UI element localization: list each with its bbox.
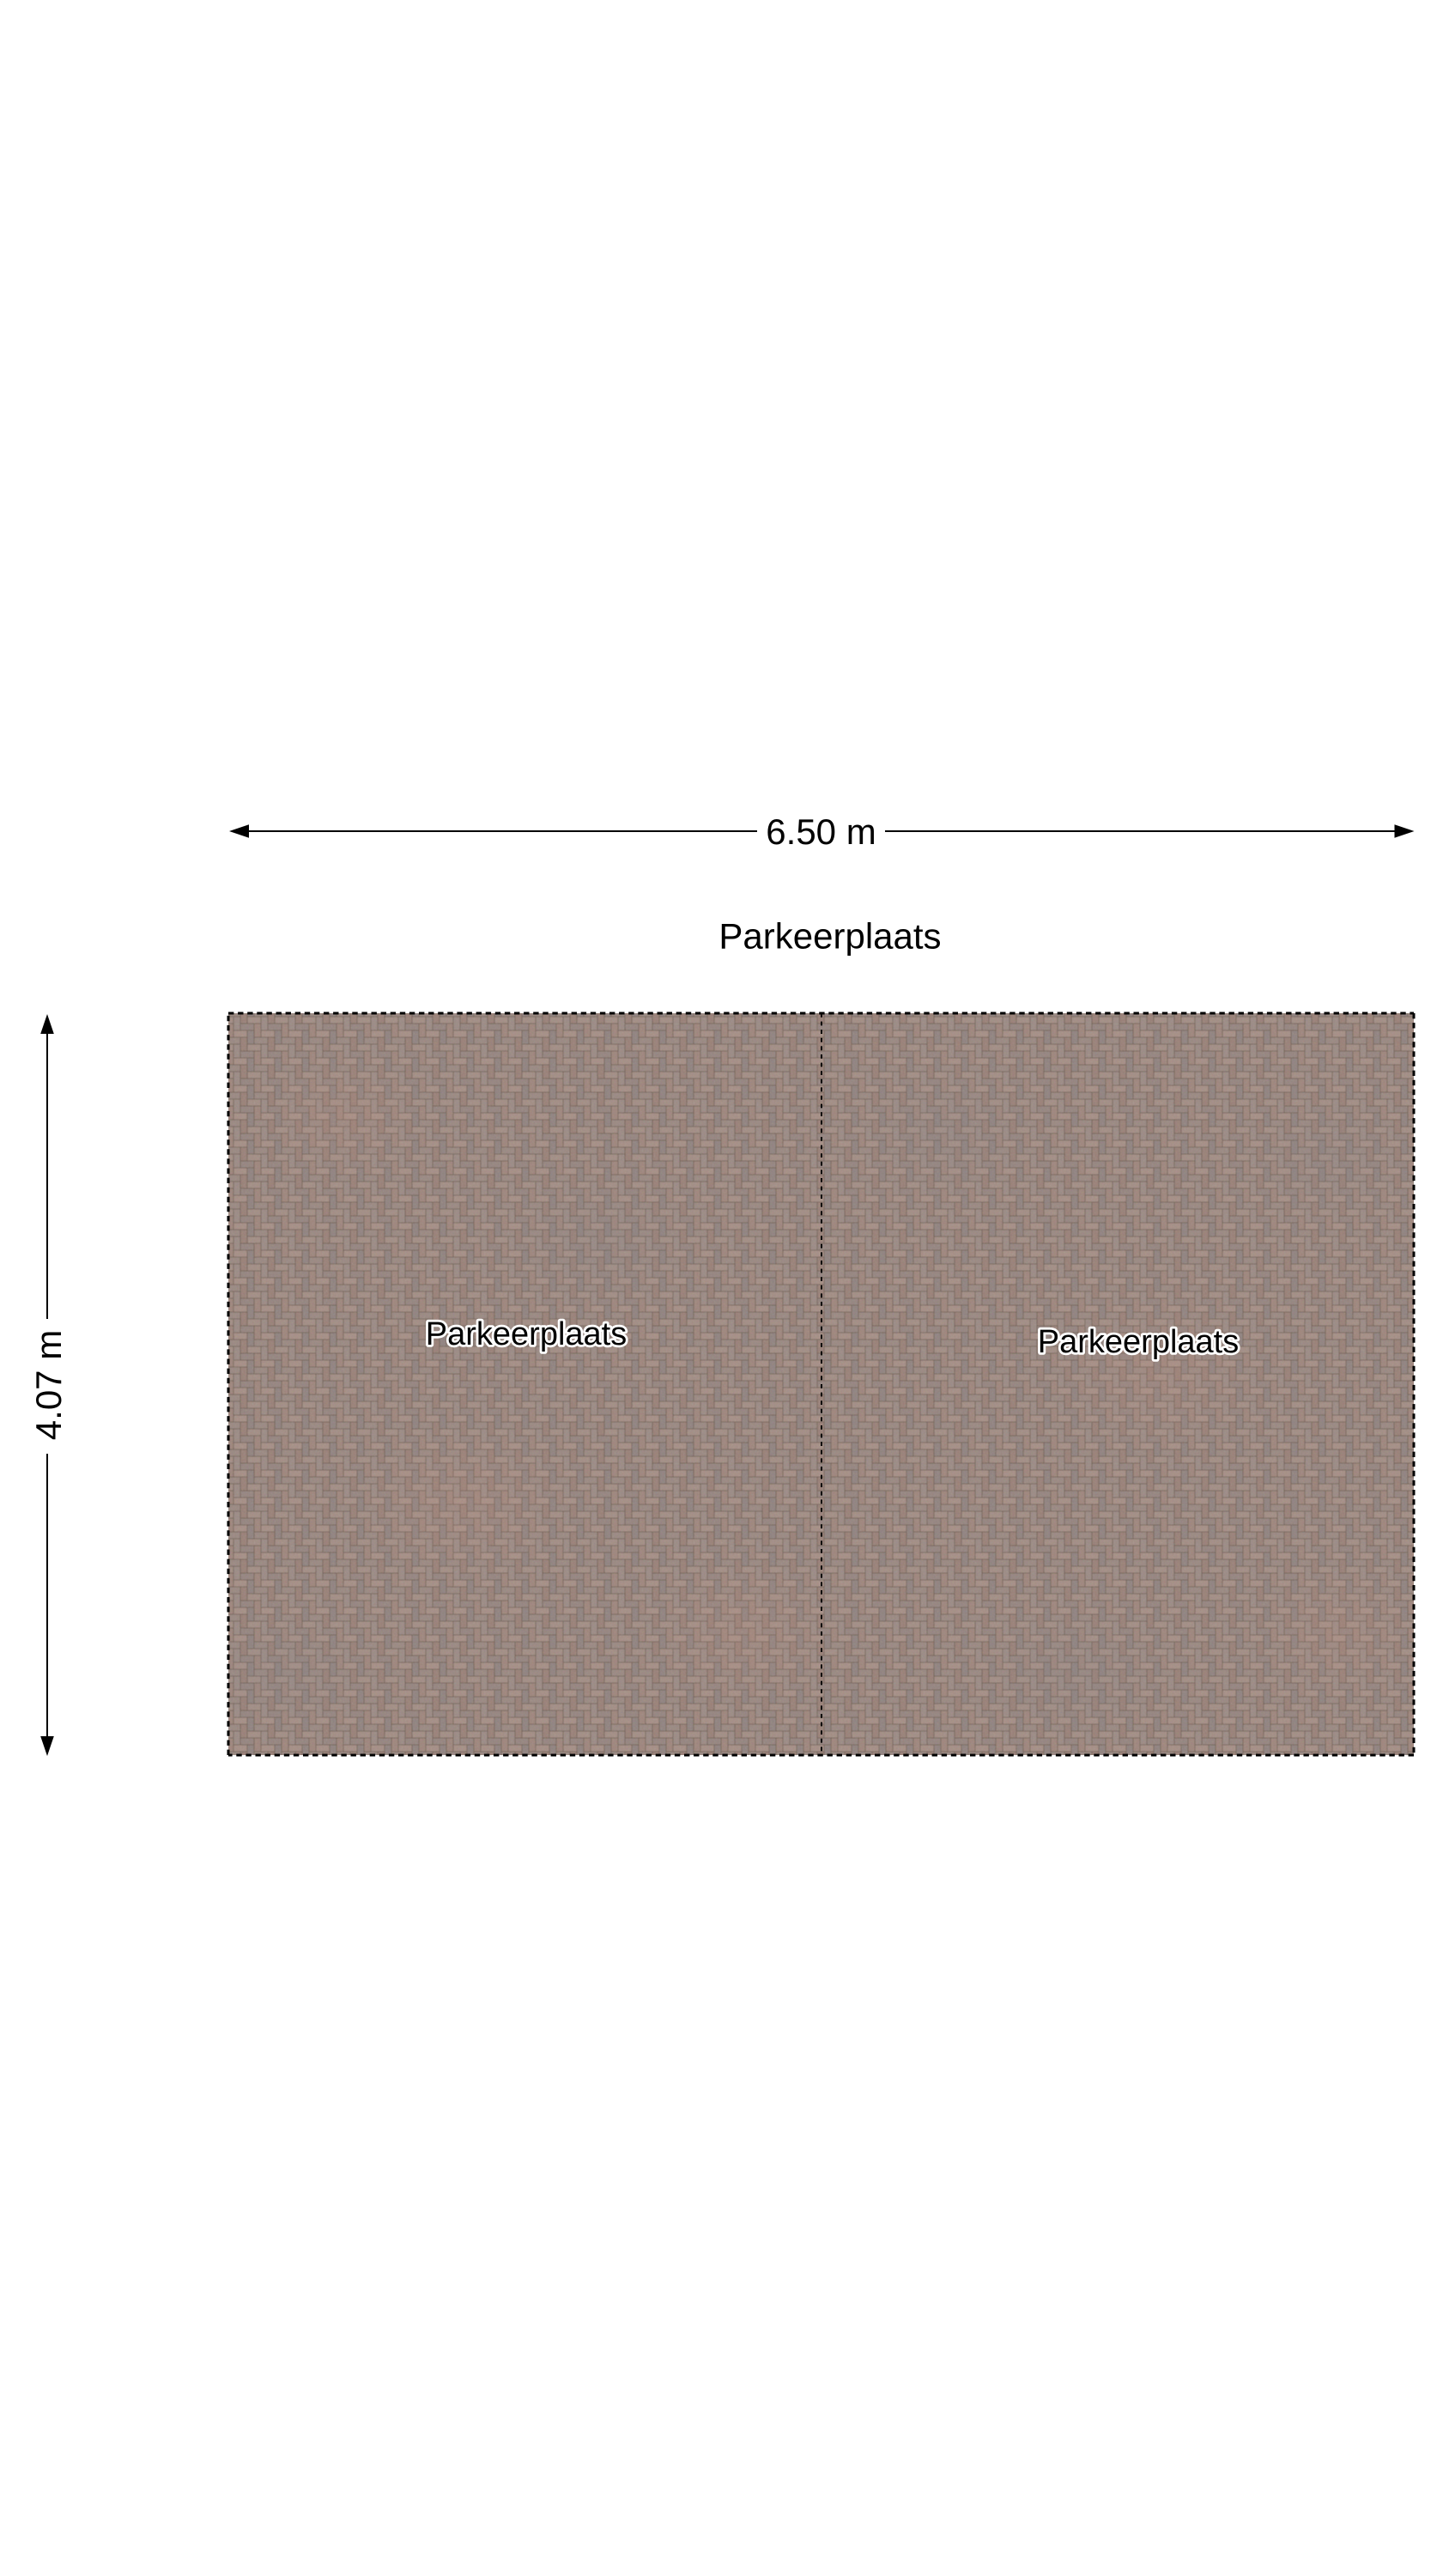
svg-text:4.07 m: 4.07 m [28, 1330, 69, 1440]
svg-text:6.50 m: 6.50 m [766, 811, 876, 852]
svg-text:Parkeerplaats: Parkeerplaats [1038, 1324, 1239, 1360]
svg-text:Parkeerplaats: Parkeerplaats [426, 1316, 627, 1352]
svg-text:Parkeerplaats: Parkeerplaats [718, 916, 941, 957]
